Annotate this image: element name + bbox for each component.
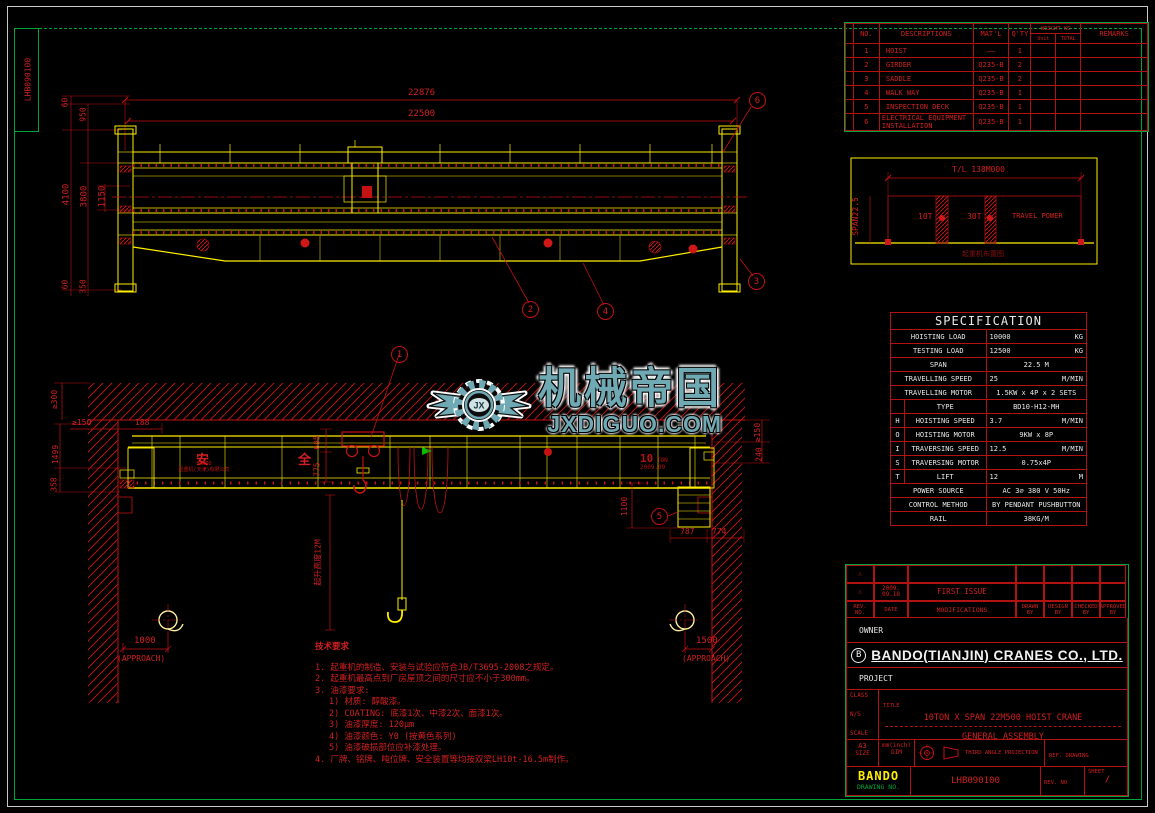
note-line: 1) 材质: 醇酸漆。 [315,697,650,709]
parts-row-4: 4 WALK WAY Q235-B 1 [846,86,1148,100]
part-qty: 1 [1009,114,1031,131]
parts-col-qty: Q'TY [1009,24,1031,44]
part-total [1056,114,1081,131]
dim-label-4100: 4100 [62,184,71,206]
spec-label: CONTROL METHOD [891,498,987,512]
part-remarks [1081,72,1148,86]
spec-label: POWER SOURCE [891,484,987,498]
brand-name: BANDO [847,769,910,783]
spec-label: SPAN [891,358,987,372]
part-remarks [1081,86,1148,100]
part-total [1056,86,1081,100]
part-qty: 2 [1009,58,1031,72]
part-unit [1031,100,1056,114]
note-line: 5) 油漆破损部位应补漆处理。 [315,743,650,755]
dim-label-1499: 1499 [51,445,60,464]
dim-units-label: DIM [879,749,914,756]
parts-row-1: 1 HOIST —— 1 [846,44,1148,58]
part-qty: 1 [1009,44,1031,58]
class-label: CLASS [850,692,878,699]
spec-label: TESTING LOAD [891,344,987,358]
capacity-unit: TON [657,457,668,464]
part-matl: Q235-B [973,100,1009,114]
projection-label: THIRD ANGLE PROJECTION [965,750,1038,756]
spec-value: 12.5 [990,445,1007,453]
spec-unit: M/MIN [1062,375,1083,383]
revision-col-design: DESIGN BY [1044,601,1072,618]
rail-layout-crane3: TRAVEL POWER [1012,212,1063,220]
revision-col-drawn: DRAWN BY [1016,601,1044,618]
dim-label-774: 774 [712,527,726,536]
note-line: 2) COATING: 底漆1次、中漆2次、面漆1次。 [315,709,650,721]
note-line: 4) 油漆颜色: Y0 (按黄色系列) [315,732,650,744]
part-desc: SADDLE [879,72,973,86]
spec-label: TRAVERSING MOTOR [904,456,986,470]
spec-value: 3.7 [990,417,1003,425]
drawing-title-line2: GENERAL ASSEMBLY [879,732,1127,742]
revision-col-modifications: MODIFICATIONS [908,601,1016,618]
spec-group-letter: H [891,414,905,428]
girder-brand-text: BANDO 起重机(天津)有限公司 [178,462,230,473]
dim-units-value: mm(inch) [879,742,914,749]
spec-value: 38KG/M [990,515,1083,523]
company-logo-icon: B [851,648,866,663]
dim-label-950: 950 [79,107,88,121]
girder-text-safety-2: 全 [298,449,311,468]
watermark-logo-initials: JX [473,401,484,411]
part-remarks [1081,44,1148,58]
dim-label-358: 358 [50,477,59,491]
note-line: 2. 起重机最高点到厂房屋顶之间的尺寸应不小于300mm。 [315,674,650,686]
part-no: 6 [853,114,879,131]
dim-label-total-length: 22876 [408,89,435,98]
note-line: 3) 油漆厚度: 120μm [315,720,650,732]
dim-label-approach-left-caption: (APPROACH) [117,654,165,663]
part-no: 4 [853,86,879,100]
balloon-1: 1 [391,346,408,363]
spec-unit: M/MIN [1062,417,1083,425]
part-desc: INSPECTION DECK [879,100,973,114]
spec-label: TYPE [904,400,986,414]
dim-label-775: 775 [313,462,322,476]
owner-label: OWNER [859,626,883,635]
dim-label-clearance-300: ≥300 [50,390,59,409]
revision-date: 2009. 09.18 [874,583,908,601]
rail-layout-span: SPAN22.5 [851,197,860,236]
girder-brand-line2: 起重机(天津)有限公司 [178,468,230,474]
ref-drawing-label: REF. DRAWING [1049,753,1089,759]
size-label: SIZE [847,750,878,757]
parts-col-total: TOTAL [1056,34,1081,44]
drawing-number: LHB090100 [951,776,1000,786]
watermark-brand-cn: 机械帝国 [538,367,722,411]
note-line: 4. 厂牌、铭牌、吨位牌、安全装置等均按双梁LH10t-16.5m制作。 [315,755,650,767]
dim-label-188: 188 [135,418,149,427]
spec-label: TRAVERSING SPEED [904,442,986,456]
balloon-5: 5 [651,508,668,525]
part-total [1056,58,1081,72]
dim-label-span: 22500 [408,110,435,119]
spec-value: 0.75x4P [990,459,1083,467]
rail-layout-crane2: 30T [967,212,981,221]
spec-value: 25 [990,375,998,383]
notes-title: 技术要求 [315,642,650,654]
spec-value: AC 3∅ 380 V 50Hz [990,487,1083,495]
spec-value: 12 [990,473,998,481]
spec-value: 9KW x 8P [990,431,1083,439]
dim-label-approach-right: 1500 [696,637,718,646]
projection-symbol-icon [918,743,962,763]
dim-label-approach-right-caption: (APPROACH) [682,654,730,663]
dim-label-clearance-150-right: ≥150 [753,423,762,442]
parts-row-5: 5 INSPECTION DECK Q235-B 1 [846,100,1148,114]
spec-label: LIFT [904,470,986,484]
revision-mark-icon: △ [846,583,874,601]
revision-col-date: DATE [874,601,908,618]
part-unit [1031,86,1056,100]
spec-label: HOISTING LOAD [891,330,987,344]
parts-row-2: 2 GIRDER Q235-B 2 [846,58,1148,72]
revision-col-rev: REV. NO. [846,601,874,618]
balloon-3: 3 [748,273,765,290]
part-matl: Q235-B [973,72,1009,86]
spec-label: HOISTING MOTOR [904,428,986,442]
parts-col-matl: MAT'L [973,24,1009,44]
spec-group-letter: S [891,456,905,470]
revision-col-approved: APPROVED BY [1100,601,1126,618]
part-matl: Q235-B [973,58,1009,72]
spec-title: SPECIFICATION [891,313,1087,330]
capacity-date: 2009.09 [640,464,668,471]
revision-col-checked: CHECKED BY [1072,601,1100,618]
dim-label-695: 695 [313,435,322,449]
spec-unit: KG [1075,333,1083,341]
dim-label-clearance-150-left: ≥150 [72,418,91,427]
spec-value: BD10-H12-MH [990,403,1083,411]
plan-view [62,96,753,305]
note-line: 3. 油漆要求: [315,686,650,698]
specification-table: SPECIFICATION HOISTING LOAD 10000KG TEST… [890,312,1087,526]
part-desc: WALK WAY [879,86,973,100]
revision-mark-icon: △ [846,565,874,583]
spec-group-letter: I [891,442,905,456]
sheet-value: / [1088,775,1127,785]
part-matl: Q235-B [973,86,1009,100]
technical-notes: 技术要求 1. 起重机的制造、安装与试验应符合JB/T3695-2008之规定。… [315,642,650,766]
spec-value: 22.5 M [990,361,1083,369]
spec-label: HOISTING SPEED [904,414,986,428]
drawing-no-label: DRAWING NO. [847,783,910,791]
dim-label-60-bottom: 60 [60,280,69,290]
dim-label-1150: 1150 [98,186,107,208]
spec-value: BY PENDANT PUSHBUTTON [990,501,1083,509]
part-total [1056,44,1081,58]
spec-group-letter [891,400,905,414]
capacity-mark: 10 TON 2009.09 [640,455,668,471]
part-remarks [1081,100,1148,114]
revision-text: FIRST ISSUE [908,583,1016,601]
part-qty: 1 [1009,86,1031,100]
scale-label: SCALE [850,730,878,737]
watermark: JX 机械帝国 JXDIGUO.COM [426,367,722,443]
ns-label: N/S [850,711,878,718]
spec-group-letter: O [891,428,905,442]
company-name: BANDO(TIANJIN) CRANES CO., LTD. [871,648,1123,663]
parts-table: NO. DESCRIPTIONS MAT'L Q'TY WEIGHT KG RE… [845,23,1148,131]
dim-label-350: 350 [79,279,88,293]
size-value: A3 [847,742,878,750]
company-row: B BANDO(TIANJIN) CRANES CO., LTD. [846,643,1128,668]
part-total [1056,100,1081,114]
part-qty: 2 [1009,72,1031,86]
parts-col-weight: WEIGHT KG [1031,24,1081,34]
part-qty: 1 [1009,100,1031,114]
dim-label-60-top: 60 [60,98,69,108]
part-desc: GIRDER [879,58,973,72]
part-no: 5 [853,100,879,114]
spec-unit: KG [1075,347,1083,355]
spec-unit: M [1079,473,1083,481]
parts-row-6: 6 ELECTRICAL EQUIPMENT INSTALLATION Q235… [846,114,1148,131]
watermark-logo-icon: JX [426,367,532,443]
drawing-title-line1: 10TON X SPAN 22M500 HOIST CRANE [885,713,1121,727]
title-block: △ △ 2009. 09.18 FIRST ISSUE REV. NO. DAT… [846,565,1128,796]
dim-label-approach-left: 1000 [134,637,156,646]
part-remarks [1081,114,1148,131]
cad-sheet: LHB090100 [0,0,1155,813]
balloon-4: 4 [597,303,614,320]
dim-label-lift-height: 起升高度12M [314,539,323,585]
dim-label-240: 240 [755,447,764,461]
part-no: 2 [853,58,879,72]
part-unit [1031,72,1056,86]
spec-value: 10000 [990,333,1011,341]
part-desc: HOIST [879,44,973,58]
spec-value: 1.5KW x 4P x 2 SETS [990,389,1083,397]
part-desc: ELECTRICAL EQUIPMENT INSTALLATION [879,114,973,131]
part-matl: Q235-B [973,114,1009,131]
dim-label-1100: 1100 [620,497,629,516]
dim-label-3800: 3800 [80,186,89,208]
spec-label: TRAVELLING SPEED [891,372,987,386]
parts-col-descriptions: DESCRIPTIONS [879,24,973,44]
spec-label: RAIL [891,512,987,526]
rail-layout-crane1: 10T [918,212,932,221]
spec-label: TRAVELLING MOTOR [891,386,987,400]
spec-unit: M/MIN [1062,445,1083,453]
title-label: TITLE [883,703,900,709]
balloon-2: 2 [522,301,539,318]
revision-table: △ △ 2009. 09.18 FIRST ISSUE REV. NO. DAT… [846,565,1128,618]
rev-no-label: REV. NO [1044,780,1067,786]
part-no: 1 [853,44,879,58]
watermark-brand-url: JXDIGUO.COM [538,411,722,438]
spec-value: 12500 [990,347,1011,355]
part-remarks [1081,58,1148,72]
parts-row-3: 3 SADDLE Q235-B 2 [846,72,1148,86]
dim-label-787: 787 [680,527,694,536]
project-label: PROJECT [859,674,893,683]
part-unit [1031,58,1056,72]
parts-col-unit: Unit [1031,34,1056,44]
rail-layout-caption: 起重机布置图 [962,249,1004,259]
rail-layout-total-length: T/L 138M000 [952,165,1005,174]
part-unit [1031,114,1056,131]
parts-col-no: NO. [853,24,879,44]
spec-group-letter: T [891,470,905,484]
parts-col-remarks: REMARKS [1081,24,1148,44]
note-line: 1. 起重机的制造、安装与试验应符合JB/T3695-2008之规定。 [315,663,650,675]
part-unit [1031,44,1056,58]
part-total [1056,72,1081,86]
balloon-6: 6 [749,92,766,109]
part-matl: —— [973,44,1009,58]
part-no: 3 [853,72,879,86]
